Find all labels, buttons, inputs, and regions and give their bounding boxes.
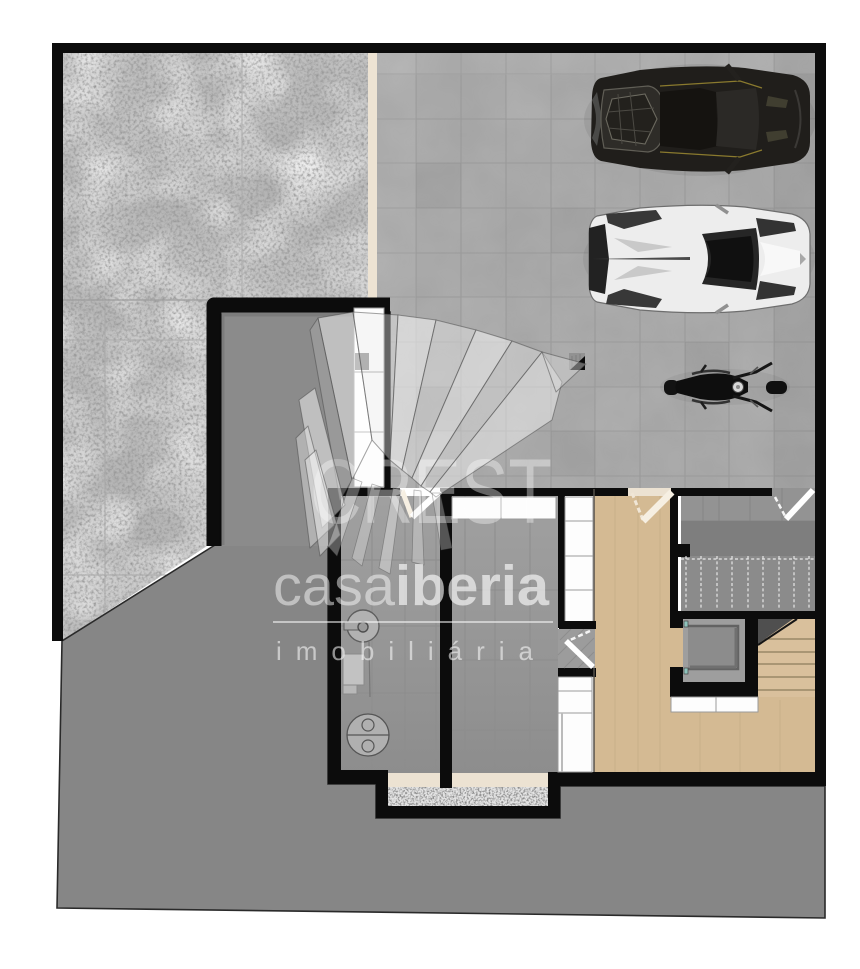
svg-text:casaiberia: casaiberia: [273, 554, 550, 618]
svg-text:imobiliária: imobiliária: [276, 636, 546, 666]
